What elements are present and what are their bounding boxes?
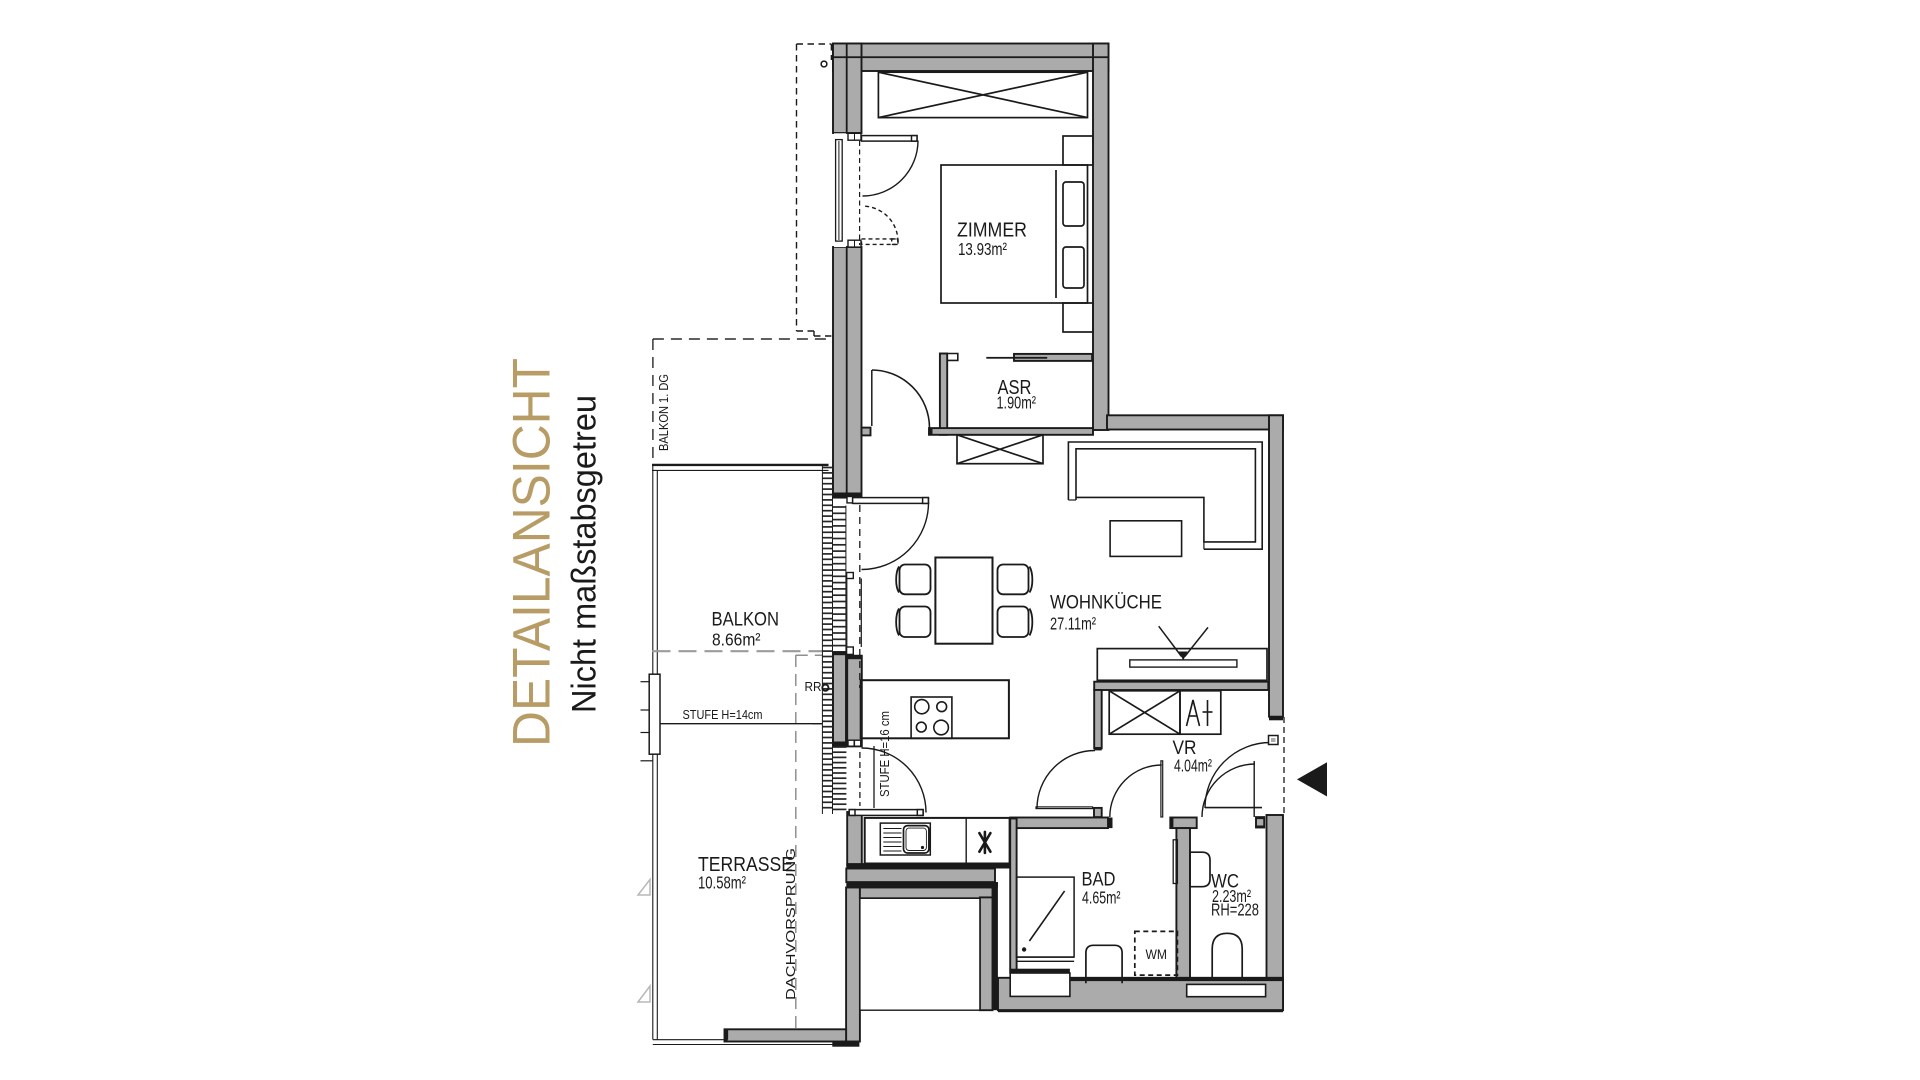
- svg-text:Nicht maßstabsgetreu: Nicht maßstabsgetreu: [566, 395, 604, 713]
- svg-text:DACHVORSPRUNG: DACHVORSPRUNG: [783, 848, 798, 1000]
- svg-text:10.58m²: 10.58m²: [698, 873, 746, 893]
- svg-text:BALKON 1. DG: BALKON 1. DG: [657, 374, 671, 451]
- svg-text:WOHNKÜCHE: WOHNKÜCHE: [1050, 593, 1162, 614]
- svg-text:RR: RR: [805, 679, 822, 694]
- svg-text:STUFE H=14cm: STUFE H=14cm: [683, 708, 763, 722]
- svg-text:27.11m²: 27.11m²: [1050, 614, 1096, 634]
- svg-text:DETAILANSICHT: DETAILANSICHT: [503, 358, 562, 747]
- svg-text:8.66m²: 8.66m²: [712, 630, 761, 650]
- svg-text:13.93m²: 13.93m²: [958, 239, 1007, 259]
- svg-text:4.65m²: 4.65m²: [1082, 888, 1121, 908]
- svg-text:1.90m²: 1.90m²: [997, 393, 1037, 413]
- svg-text:STUFE H=16 cm: STUFE H=16 cm: [878, 711, 892, 797]
- svg-text:RH=228: RH=228: [1211, 900, 1259, 920]
- svg-text:4.04m²: 4.04m²: [1174, 756, 1212, 776]
- svg-text:WM: WM: [1146, 947, 1168, 962]
- svg-text:BALKON: BALKON: [712, 609, 780, 631]
